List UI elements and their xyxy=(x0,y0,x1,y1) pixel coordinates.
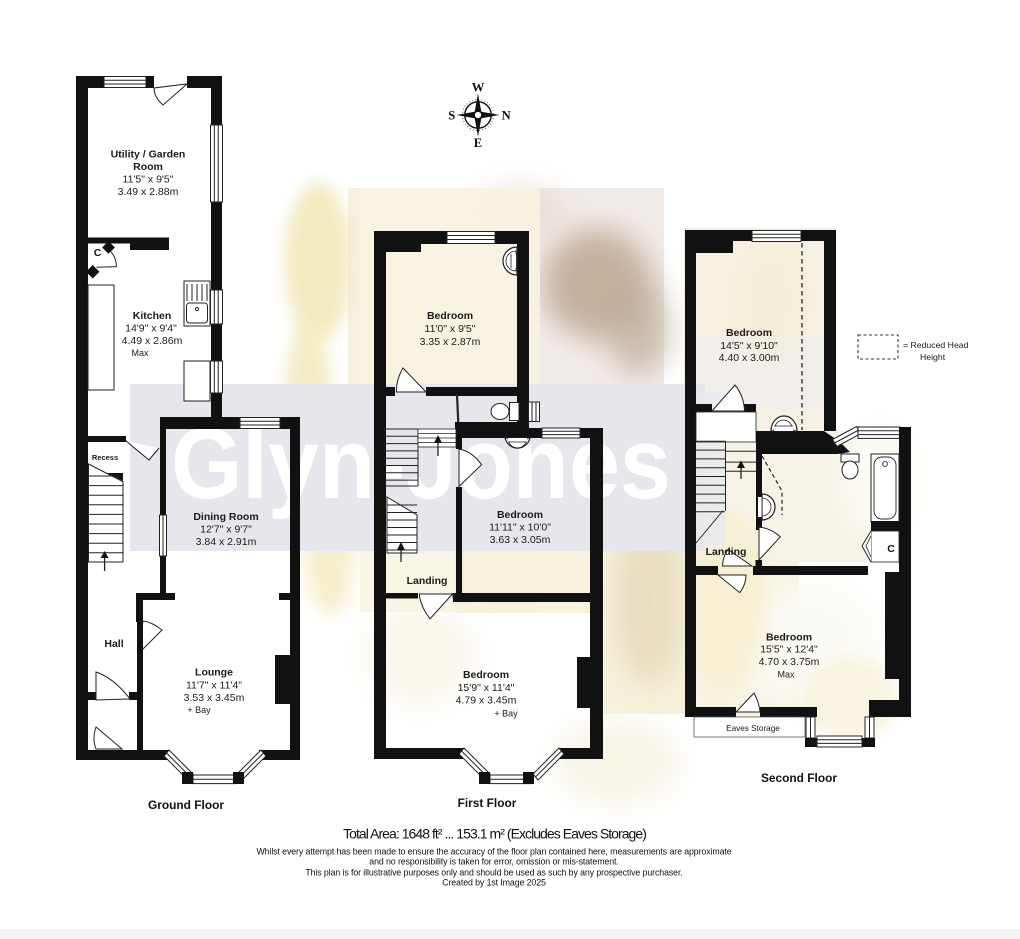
svg-text:3.53 x 3.45m: 3.53 x 3.45m xyxy=(184,692,245,704)
svg-text:11'0" x 9'5": 11'0" x 9'5" xyxy=(425,323,476,335)
svg-text:3.63 x 3.05m: 3.63 x 3.05m xyxy=(490,534,551,546)
svg-text:3.35 x 2.87m: 3.35 x 2.87m xyxy=(420,336,481,348)
svg-text:Lounge: Lounge xyxy=(195,667,233,679)
svg-text:Second Floor: Second Floor xyxy=(761,771,837,785)
svg-text:N: N xyxy=(502,108,511,122)
svg-text:12'7" x 9'7": 12'7" x 9'7" xyxy=(200,524,252,536)
svg-text:Recess: Recess xyxy=(92,453,118,462)
svg-text:4.79 x 3.45m: 4.79 x 3.45m xyxy=(456,695,517,707)
svg-text:11'5" x 9'5": 11'5" x 9'5" xyxy=(123,174,174,186)
svg-text:+ Bay: + Bay xyxy=(187,705,211,715)
svg-text:This plan is for illustrative: This plan is for illustrative purposes o… xyxy=(305,867,682,877)
svg-text:4.70 x 3.75m: 4.70 x 3.75m xyxy=(759,656,820,668)
svg-text:15'9" x 11'4": 15'9" x 11'4" xyxy=(458,682,515,694)
svg-text:Hall: Hall xyxy=(104,638,123,650)
svg-text:E: E xyxy=(474,136,482,150)
svg-text:Dining Room: Dining Room xyxy=(193,511,258,523)
svg-text:Landing: Landing xyxy=(706,546,747,558)
svg-text:C: C xyxy=(94,247,102,259)
svg-text:W: W xyxy=(472,80,485,94)
svg-text:S: S xyxy=(448,108,455,122)
svg-text:15'5" x 12'4": 15'5" x 12'4" xyxy=(760,644,818,656)
svg-text:Landing: Landing xyxy=(407,575,448,587)
svg-text:Bedroom: Bedroom xyxy=(766,632,812,644)
svg-text:Bedroom: Bedroom xyxy=(427,310,473,322)
svg-text:Kitchen: Kitchen xyxy=(133,310,172,322)
svg-text:4.40 x 3.00m: 4.40 x 3.00m xyxy=(719,352,780,364)
svg-text:Created by 1st Image 2025: Created by 1st Image 2025 xyxy=(442,877,546,887)
svg-text:Bedroom: Bedroom xyxy=(726,327,772,339)
svg-text:Ground Floor: Ground Floor xyxy=(148,798,224,812)
svg-text:First Floor: First Floor xyxy=(458,796,517,810)
svg-text:3.84 x 2.91m: 3.84 x 2.91m xyxy=(196,536,257,548)
svg-text:14'5" x 9'10": 14'5" x 9'10" xyxy=(720,340,778,352)
svg-text:and no responsibility is taken: and no responsibility is taken for error… xyxy=(369,857,618,867)
svg-text:3.49 x 2.88m: 3.49 x 2.88m xyxy=(118,186,179,198)
svg-text:Max: Max xyxy=(131,348,149,358)
svg-text:Room: Room xyxy=(133,161,163,173)
svg-text:Total Area: 1648 ft² ... 153.1: Total Area: 1648 ft² ... 153.1 m² (Exclu… xyxy=(343,826,646,842)
svg-text:Eaves Storage: Eaves Storage xyxy=(726,724,780,733)
svg-text:14'9" x 9'4": 14'9" x 9'4" xyxy=(125,323,177,335)
svg-text:4.49 x 2.86m: 4.49 x 2.86m xyxy=(122,335,183,347)
svg-text:11'7" x 11'4": 11'7" x 11'4" xyxy=(186,680,242,692)
svg-text:= Reduced Head: = Reduced Head xyxy=(903,340,969,350)
svg-text:Utility / Garden: Utility / Garden xyxy=(111,149,186,161)
svg-text:Bedroom: Bedroom xyxy=(497,509,543,521)
svg-text:Max: Max xyxy=(777,670,795,680)
svg-text:Height: Height xyxy=(920,352,946,362)
svg-text:11'11" x 10'0": 11'11" x 10'0" xyxy=(489,522,551,534)
svg-text:C: C xyxy=(887,543,895,555)
svg-text:+ Bay: + Bay xyxy=(494,709,518,719)
svg-text:Bedroom: Bedroom xyxy=(463,669,509,681)
svg-text:Whilst every attempt has been: Whilst every attempt has been made to en… xyxy=(256,847,731,857)
